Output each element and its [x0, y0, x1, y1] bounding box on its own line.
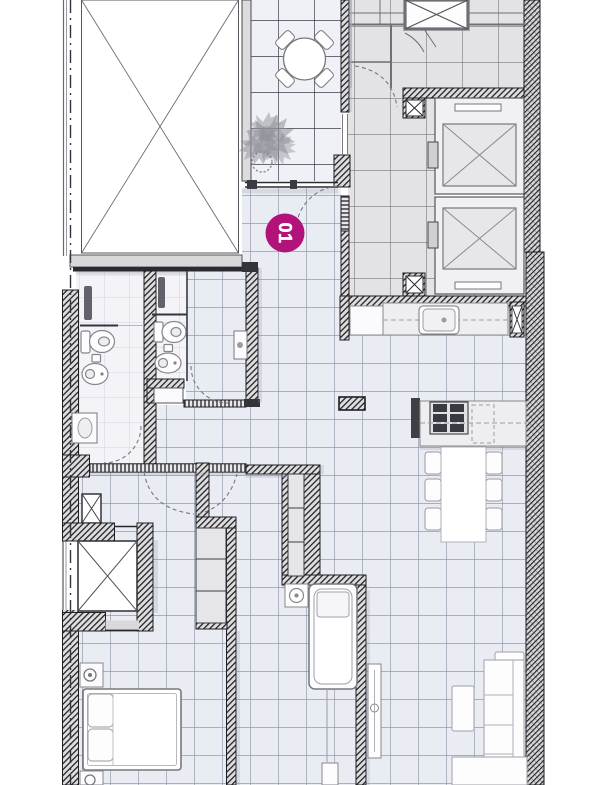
svg-text:01: 01	[275, 222, 295, 243]
